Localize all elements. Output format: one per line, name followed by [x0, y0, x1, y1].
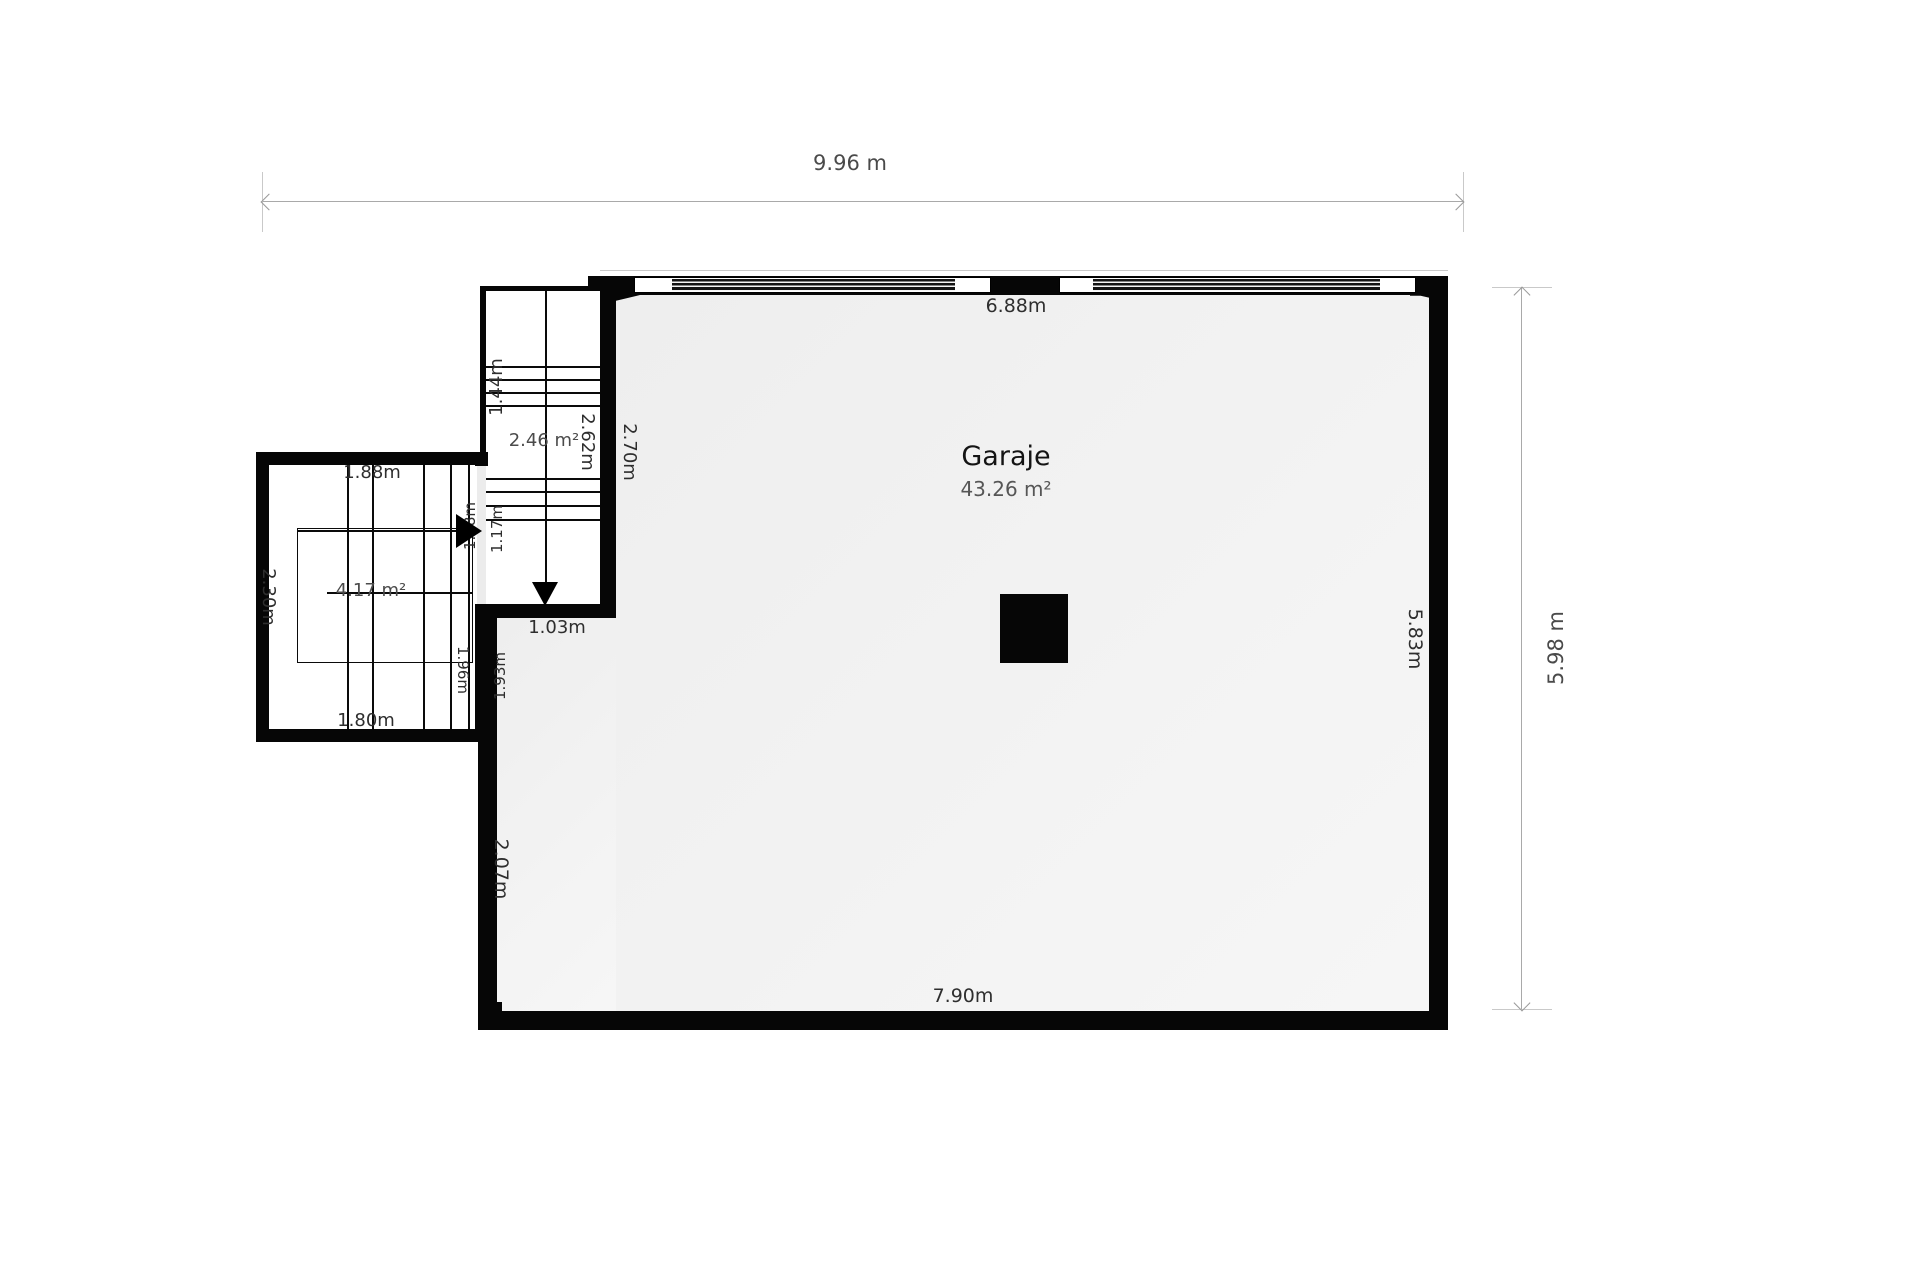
upper-stairs-wall-top	[480, 286, 600, 291]
lower-stairs-wall-right	[475, 604, 488, 742]
corner-wedge-bottom-left	[478, 1002, 502, 1030]
lower-stairs-area-label: 4.17 m²	[321, 580, 421, 602]
upper-stairs-wall-bottom	[480, 604, 616, 618]
room-title: Garaje	[886, 441, 1126, 472]
window-2-glazing	[1093, 279, 1380, 291]
stair-run-line	[297, 530, 457, 532]
window-1-glazing	[672, 279, 955, 291]
lower-bottom-label: 1.80m	[316, 710, 416, 732]
lower-run-left-label: 1.96m	[452, 620, 474, 720]
dimension-line-top	[262, 201, 1464, 202]
floorplan-canvas: 9.96 m 5.98 m 1.44m 2.46 m² 2.62m 1.17m …	[0, 0, 1920, 1280]
stair-down-arrow-icon	[532, 582, 558, 606]
garage-room-floor-left	[496, 618, 616, 1011]
overall-height-label: 5.98 m	[1545, 598, 1567, 698]
left-lower-wall-label: 2.07m	[490, 819, 512, 919]
upper-run-bottom-label: 1.17m	[486, 479, 508, 579]
arrow-up-icon	[1514, 287, 1531, 304]
window-wall-label: 6.88m	[966, 295, 1066, 317]
opening-width-label: 1.03m	[507, 617, 607, 639]
wall-right	[1429, 276, 1448, 1030]
pillar	[1000, 594, 1068, 663]
dimension-line-right	[1521, 287, 1522, 1010]
lower-top-label: 1.88m	[322, 462, 422, 484]
arrow-right-icon	[1448, 194, 1465, 211]
wall-bottom	[478, 1011, 1448, 1030]
room-area-label: 43.26 m²	[886, 477, 1126, 501]
left-upper-wall-label: 2.70m	[618, 402, 640, 502]
bottom-wall-label: 7.90m	[913, 985, 1013, 1007]
overall-width-label: 9.96 m	[800, 152, 900, 174]
window-outer-sill-line	[600, 270, 1448, 271]
arrow-left-icon	[261, 194, 278, 211]
stair-run-arrow-icon	[456, 514, 482, 548]
lower-run-right-label: 1.93m	[489, 626, 511, 726]
upper-stairs-wall-right	[600, 276, 616, 618]
lower-stairs-wall-right-stub	[475, 452, 488, 466]
upper-run-top-label: 1.44m	[486, 337, 508, 437]
upper-stairs-width-label: 2.62m	[576, 392, 598, 492]
lower-left-label: 2.30m	[257, 547, 279, 647]
right-wall-label: 5.83m	[1404, 589, 1426, 689]
